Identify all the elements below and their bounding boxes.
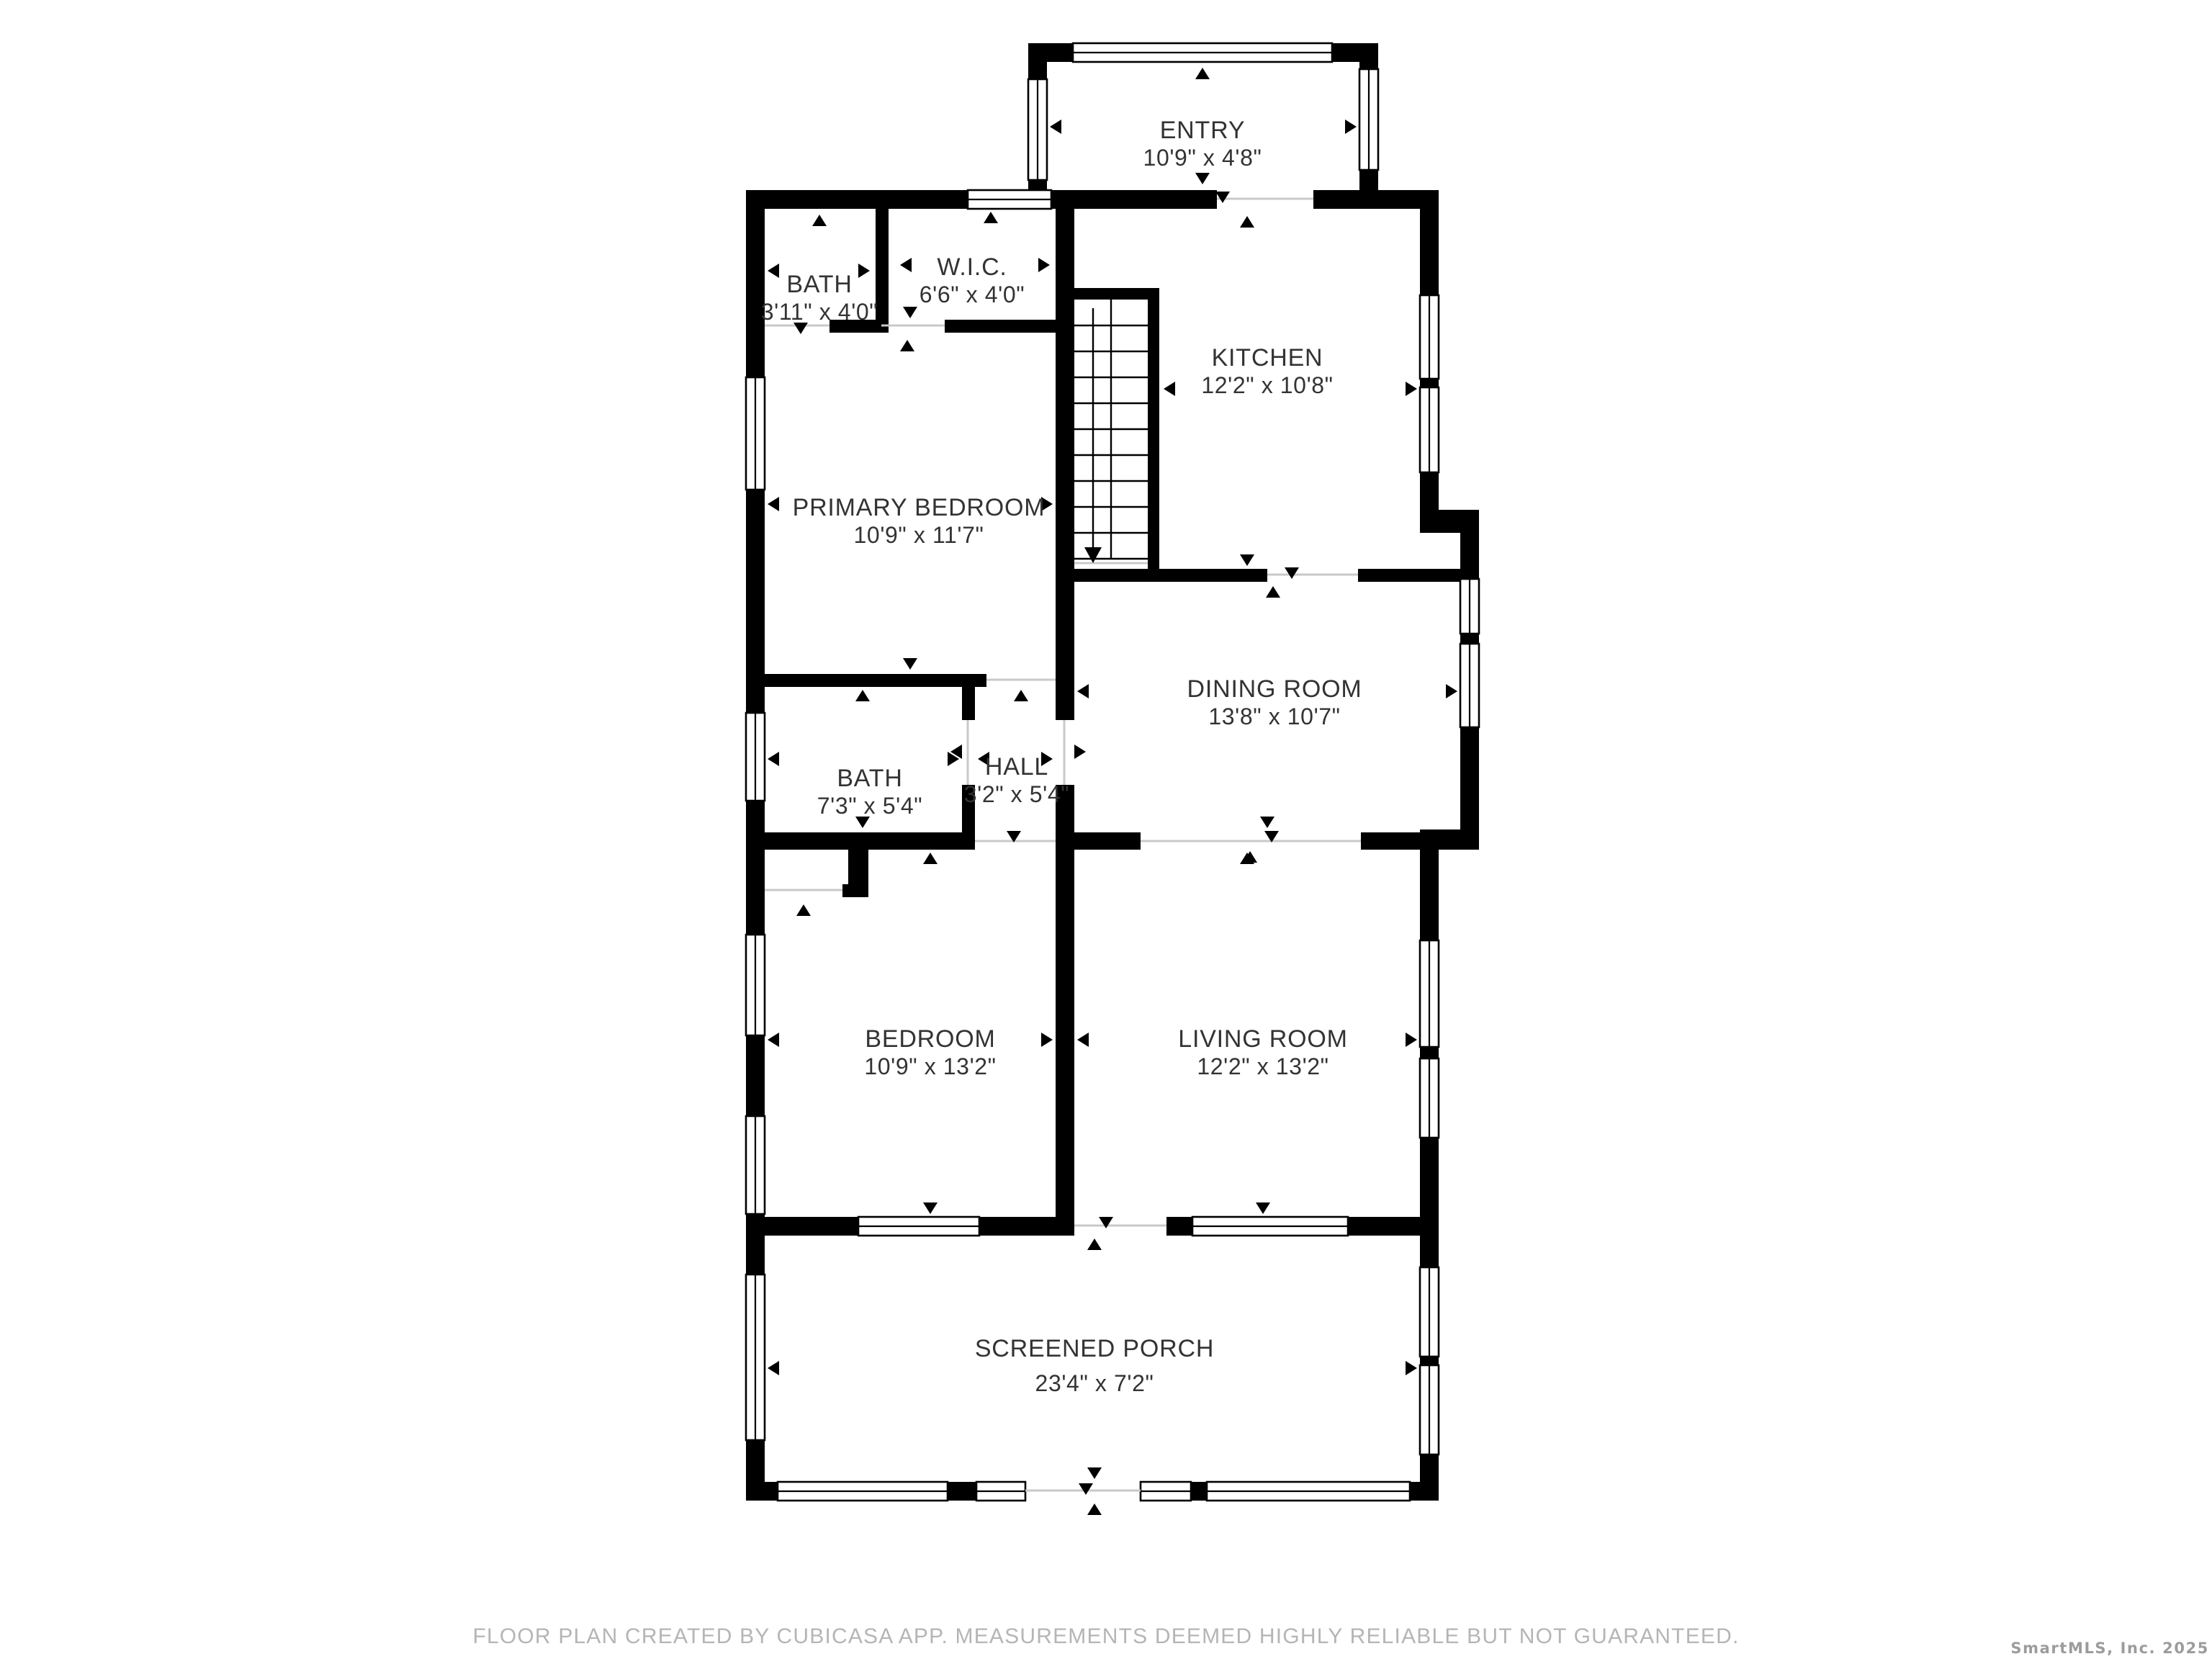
- door-marker-icon: [1285, 567, 1299, 579]
- window-icon: [746, 1274, 765, 1440]
- room-name: SCREENED PORCH: [975, 1335, 1214, 1362]
- room-label-kitchen: KITCHEN 12'2" x 10'8": [1201, 344, 1333, 398]
- dim-tick-icon: [1077, 1033, 1089, 1047]
- dim-tick-icon: [1164, 382, 1175, 396]
- window-icon: [1460, 644, 1479, 727]
- window-icon: [746, 377, 765, 490]
- dim-tick-icon: [768, 1361, 779, 1375]
- door-marker-icon: [1079, 1483, 1093, 1495]
- window-icon: [746, 935, 765, 1035]
- window-icon: [976, 1482, 1025, 1501]
- room-label-bath-upper: BATH 3'11" x 4'0": [761, 271, 878, 325]
- dim-tick-icon: [1087, 1467, 1102, 1479]
- dim-tick-icon: [1446, 684, 1457, 698]
- room-dims: 10'9" x 13'2": [864, 1053, 996, 1079]
- room-label-dining-room: DINING ROOM 13'8" x 10'7": [1187, 675, 1362, 729]
- window-icon: [778, 1482, 948, 1501]
- room-dims: 3'2" x 5'4": [964, 781, 1070, 807]
- room-name: HALL: [985, 753, 1048, 781]
- dim-tick-icon: [1406, 1361, 1417, 1375]
- door-marker-icon: [1215, 192, 1230, 203]
- room-dims: 3'11" x 4'0": [761, 299, 878, 325]
- door-marker-icon: [1014, 690, 1028, 701]
- room-name: LIVING ROOM: [1178, 1025, 1348, 1053]
- room-name: BATH: [786, 271, 852, 298]
- window-icon: [746, 1116, 765, 1214]
- disclaimer-text: FLOOR PLAN CREATED BY CUBICASA APP. MEAS…: [472, 1624, 1739, 1648]
- dim-tick-icon: [1406, 382, 1417, 396]
- door-marker-icon: [1074, 745, 1086, 759]
- window-icon: [1207, 1482, 1410, 1501]
- dim-tick-icon: [768, 264, 779, 278]
- room-name: KITCHEN: [1212, 344, 1323, 372]
- dim-tick-icon: [903, 658, 917, 670]
- room-label-wic: W.I.C. 6'6" x 4'0": [920, 253, 1025, 307]
- room-label-bath-middle: BATH 7'3" x 5'4": [817, 765, 923, 819]
- door-marker-icon: [1087, 1503, 1102, 1515]
- door-marker-icon: [796, 904, 811, 916]
- window-icon: [1420, 387, 1439, 472]
- room-label-primary-bedroom: PRIMARY BEDROOM 10'9" x 11'7": [793, 494, 1046, 548]
- window-icon: [1028, 79, 1047, 180]
- room-label-entry: ENTRY 10'9" x 4'8": [1143, 117, 1262, 171]
- dim-tick-icon: [858, 264, 870, 278]
- dim-tick-icon: [923, 853, 938, 864]
- room-dims: 6'6" x 4'0": [920, 282, 1025, 307]
- door-marker-icon: [1099, 1217, 1113, 1228]
- dim-tick-icon: [1195, 68, 1210, 79]
- window-icon: [1192, 1217, 1348, 1236]
- dim-tick-icon: [768, 752, 779, 766]
- dim-tick-icon: [984, 212, 998, 223]
- room-dims: 23'4" x 7'2": [1035, 1370, 1154, 1396]
- room-name: ENTRY: [1160, 117, 1246, 144]
- dim-tick-icon: [855, 690, 870, 701]
- dim-tick-icon: [1345, 120, 1357, 134]
- dim-tick-icon: [1240, 554, 1254, 566]
- room-label-living-room: LIVING ROOM 12'2" x 13'2": [1178, 1025, 1348, 1079]
- dim-tick-icon: [900, 258, 912, 272]
- door-marker-icon: [1266, 586, 1280, 598]
- dim-tick-icon: [768, 1033, 779, 1047]
- room-name: BATH: [837, 765, 902, 792]
- dim-tick-icon: [812, 215, 827, 226]
- window-icon: [1420, 1365, 1439, 1455]
- watermark-text: SmartMLS, Inc. 2025: [2010, 1640, 2209, 1657]
- room-label-bedroom: BEDROOM 10'9" x 13'2": [864, 1025, 996, 1079]
- dim-tick-icon: [1195, 173, 1210, 184]
- window-icon: [1359, 69, 1378, 170]
- room-dims: 12'2" x 13'2": [1197, 1053, 1328, 1079]
- dim-tick-icon: [1041, 1033, 1053, 1047]
- window-icon: [1420, 295, 1439, 379]
- window-icon: [968, 190, 1051, 209]
- window-icon: [746, 713, 765, 801]
- window-icon: [1460, 579, 1479, 634]
- dim-tick-icon: [1077, 684, 1089, 698]
- window-icon: [858, 1217, 979, 1236]
- window-icon: [1141, 1482, 1191, 1501]
- room-dims: 12'2" x 10'8": [1201, 372, 1333, 398]
- dim-tick-icon: [768, 497, 779, 511]
- room-label-hall: HALL 3'2" x 5'4": [964, 753, 1070, 807]
- dim-tick-icon: [1260, 817, 1274, 828]
- room-dims: 10'9" x 4'8": [1143, 145, 1262, 171]
- room-name: PRIMARY BEDROOM: [793, 494, 1046, 521]
- door-marker-icon: [1087, 1238, 1102, 1250]
- room-dims: 13'8" x 10'7": [1208, 703, 1340, 729]
- dim-tick-icon: [1406, 1033, 1417, 1047]
- window-icon: [1420, 940, 1439, 1047]
- door-marker-icon: [1240, 216, 1254, 228]
- dim-tick-icon: [1256, 1202, 1270, 1214]
- room-dims: 10'9" x 11'7": [854, 522, 984, 548]
- door-marker-icon: [900, 340, 914, 351]
- room-dims: 7'3" x 5'4": [817, 793, 923, 819]
- stairs-down-arrow-icon: [1084, 308, 1102, 563]
- room-name: DINING ROOM: [1187, 675, 1362, 703]
- staircase: [1074, 300, 1148, 563]
- room-name: W.I.C.: [937, 253, 1007, 281]
- window-icon: [1073, 43, 1332, 62]
- floor-plan-canvas: ENTRY 10'9" x 4'8" BATH 3'11" x 4'0" W.I…: [0, 0, 2212, 1659]
- room-name: BEDROOM: [865, 1025, 995, 1053]
- dim-tick-icon: [923, 1202, 938, 1214]
- dim-tick-icon: [1038, 258, 1050, 272]
- window-icon: [1420, 1267, 1439, 1357]
- dim-tick-icon: [1050, 120, 1061, 134]
- window-icon: [1420, 1058, 1439, 1138]
- room-label-screened-porch: SCREENED PORCH 23'4" x 7'2": [975, 1335, 1214, 1396]
- door-marker-icon: [903, 307, 917, 318]
